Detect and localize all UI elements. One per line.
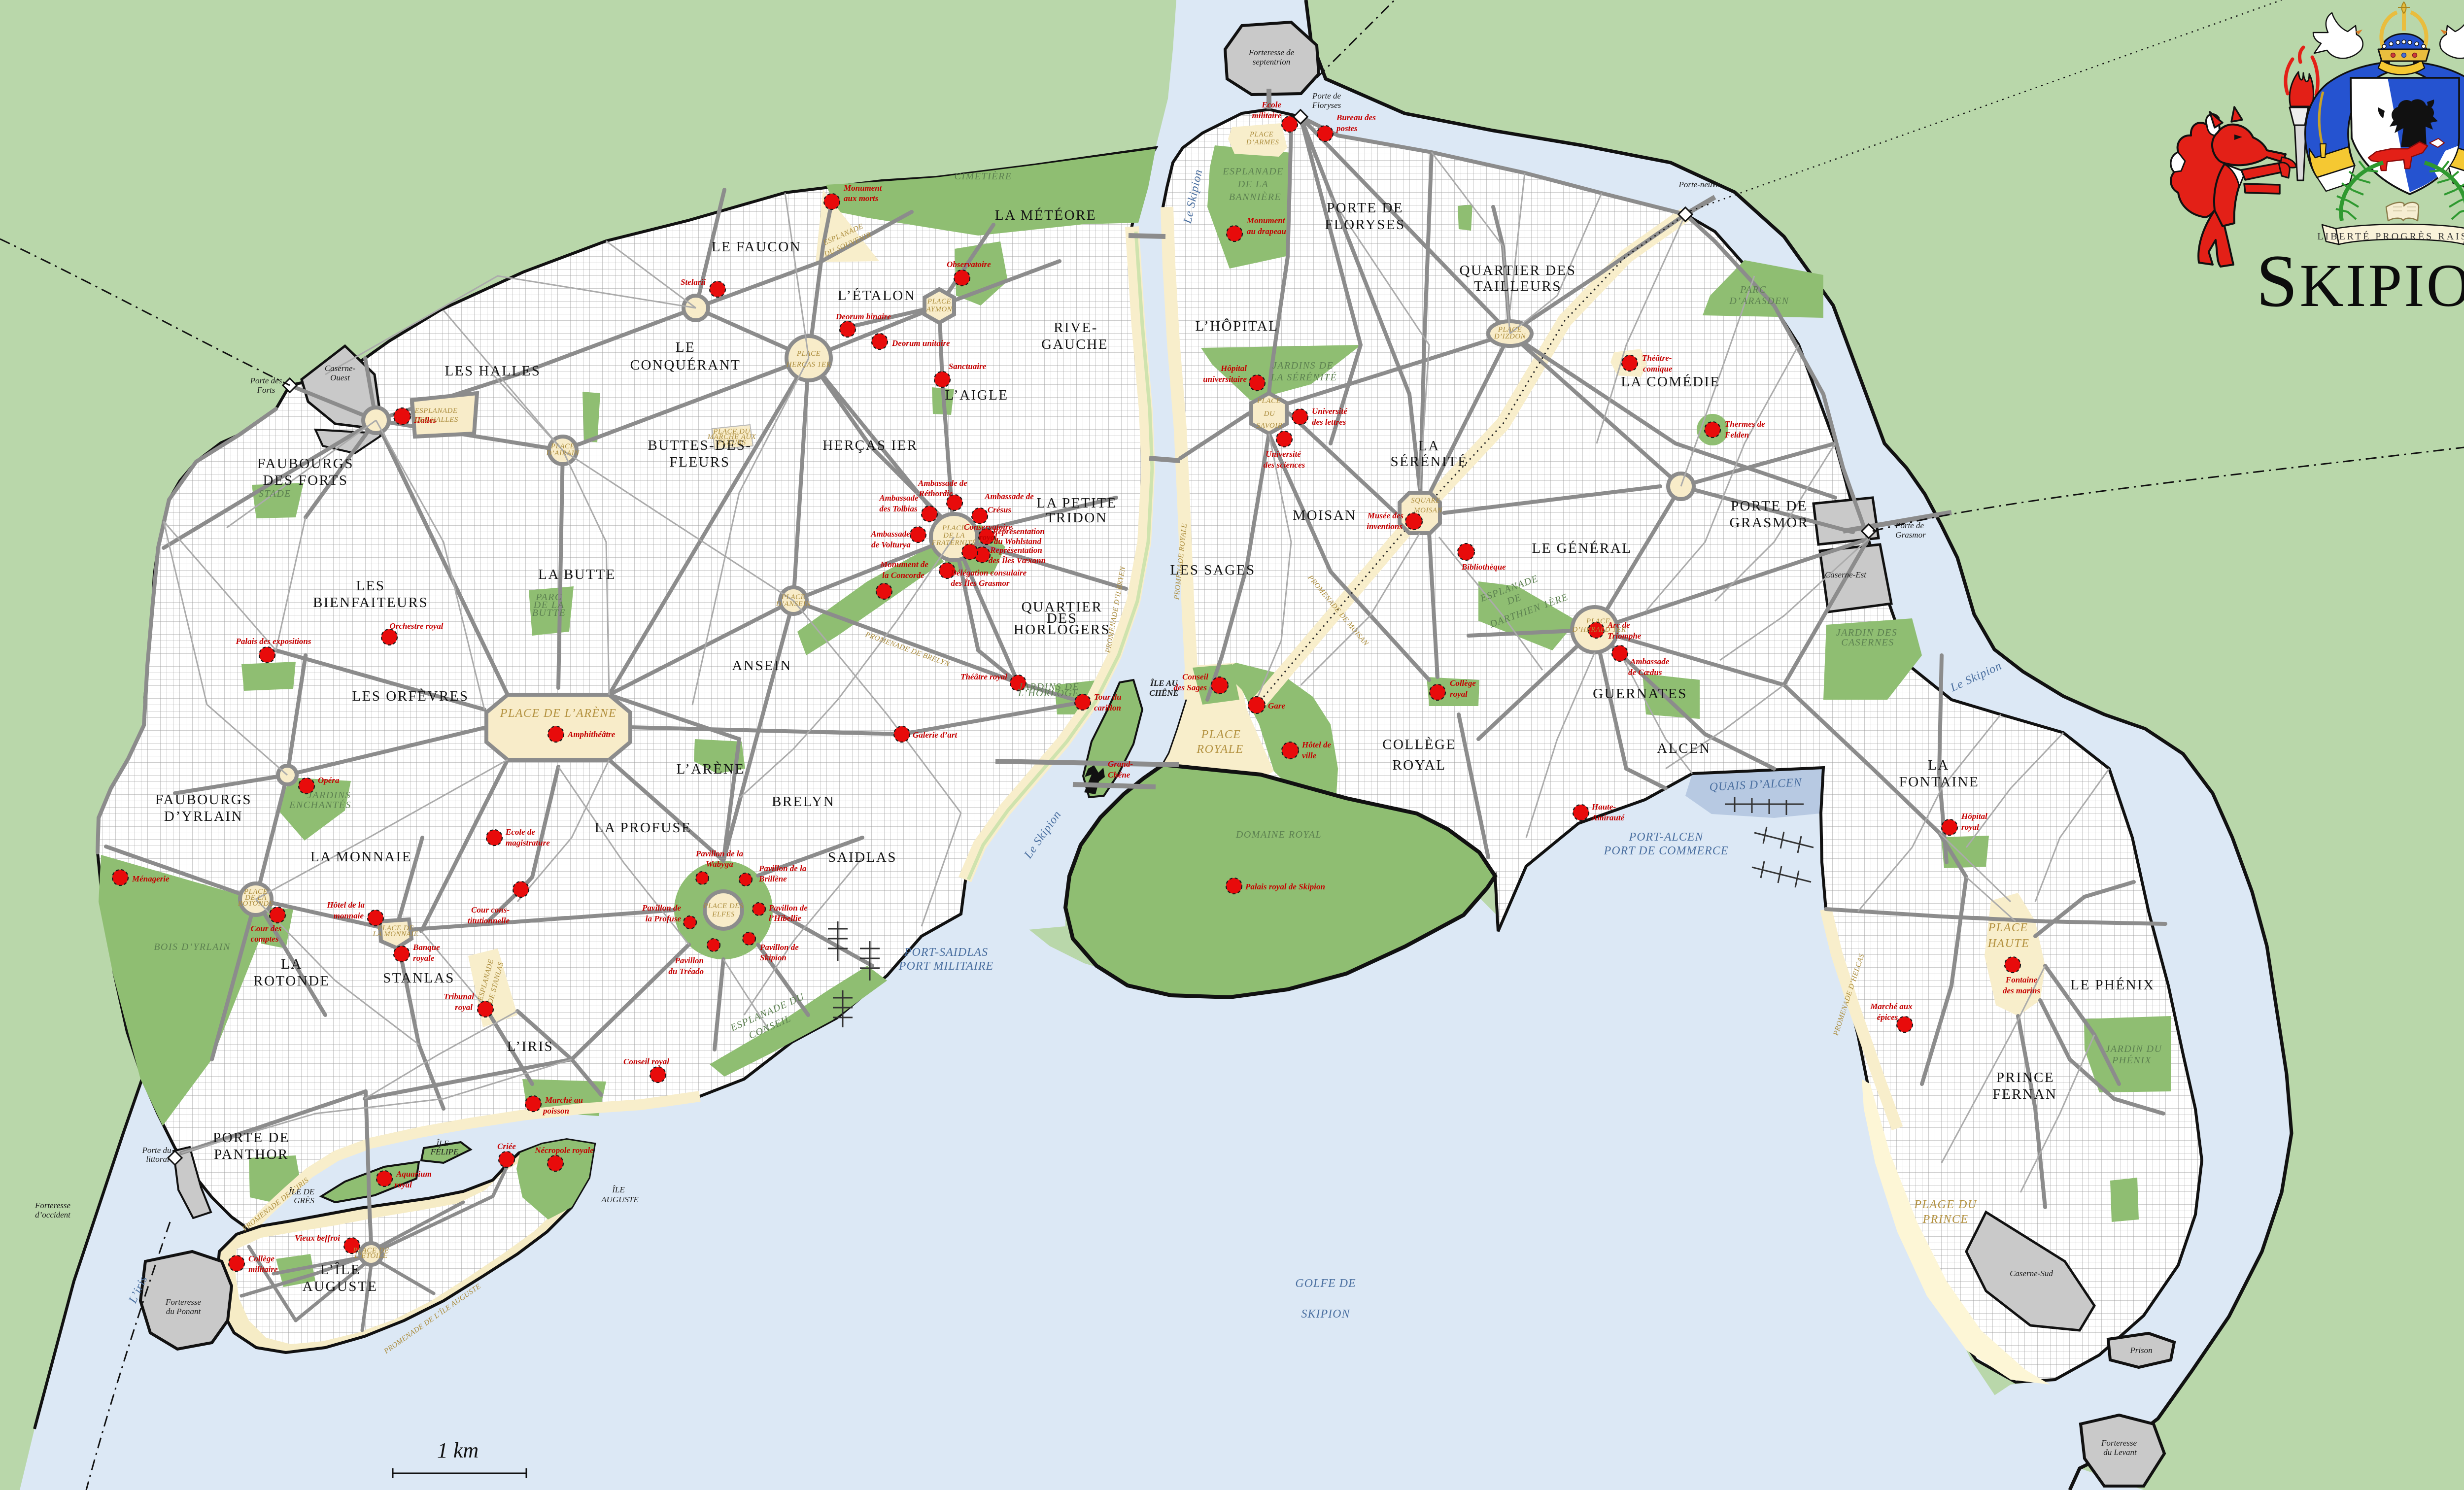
svg-text:PRINCE: PRINCE [1996, 1070, 2054, 1085]
svg-text:ROTONDE: ROTONDE [238, 900, 274, 908]
svg-text:la Concorde: la Concorde [882, 571, 924, 580]
svg-text:D’HERALD 1ER: D’HERALD 1ER [1572, 626, 1626, 634]
svg-text:Grand-: Grand- [1108, 759, 1133, 769]
svg-text:L’ÎLE: L’ÎLE [320, 1261, 361, 1278]
svg-text:QUARTIER DES: QUARTIER DES [1460, 263, 1576, 278]
svg-text:Caserne-Est: Caserne-Est [1825, 570, 1867, 579]
svg-text:1 km: 1 km [437, 1438, 479, 1462]
svg-text:PORT DE COMMERCE: PORT DE COMMERCE [1604, 845, 1729, 857]
svg-text:PLACE: PLACE [927, 298, 951, 305]
svg-text:Hôpital: Hôpital [1220, 364, 1247, 373]
svg-text:LES ORFÈVRES: LES ORFÈVRES [352, 688, 469, 704]
svg-text:COLLÈGE: COLLÈGE [1382, 736, 1456, 752]
svg-text:royal: royal [1450, 689, 1468, 699]
svg-text:STANLAS: STANLAS [383, 970, 455, 986]
svg-text:Pavillon de la: Pavillon de la [695, 849, 744, 858]
svg-text:royale: royale [413, 953, 435, 963]
svg-text:Monument: Monument [1246, 216, 1286, 225]
svg-text:ROYALE: ROYALE [1196, 743, 1243, 756]
svg-text:Conseil: Conseil [1182, 672, 1208, 681]
svg-text:L’ÉTOILE: L’ÉTOILE [354, 1252, 387, 1260]
svg-text:PORT-SAIDLAS: PORT-SAIDLAS [904, 946, 988, 959]
svg-text:ANSEIN: ANSEIN [732, 658, 791, 674]
svg-text:Floryses: Floryses [1312, 101, 1341, 110]
svg-text:des Îles Grasmor: des Îles Grasmor [951, 578, 1009, 588]
svg-text:BIENFAITEURS: BIENFAITEURS [313, 595, 428, 610]
svg-text:PANTHOR: PANTHOR [214, 1147, 289, 1162]
svg-text:ESPLANADE: ESPLANADE [1222, 166, 1284, 177]
svg-text:LES: LES [356, 578, 385, 594]
svg-text:Cour des: Cour des [251, 924, 282, 933]
svg-text:LA: LA [1928, 757, 1950, 773]
svg-text:Pavillon de: Pavillon de [759, 943, 799, 952]
svg-text:MOISAN: MOISAN [1293, 508, 1356, 523]
svg-text:Monument: Monument [843, 183, 883, 193]
svg-text:JARDIN DES: JARDIN DES [1836, 627, 1897, 638]
svg-text:Pavillon: Pavillon [674, 956, 704, 965]
svg-text:PRINCE: PRINCE [1922, 1213, 1969, 1226]
svg-text:Représentation: Représentation [990, 545, 1042, 555]
svg-text:du Ponant: du Ponant [166, 1307, 202, 1316]
svg-text:TRIDON: TRIDON [1046, 510, 1108, 526]
svg-text:Felden: Felden [1724, 430, 1749, 440]
svg-text:des marins: des marins [2003, 986, 2040, 995]
svg-text:HAUTE: HAUTE [1987, 937, 2030, 950]
svg-text:des sciences: des sciences [1264, 460, 1305, 470]
svg-text:ROTONDE: ROTONDE [253, 973, 330, 989]
svg-text:Ambassade de: Ambassade de [918, 478, 967, 488]
svg-text:Thermes de: Thermes de [1725, 419, 1765, 429]
svg-text:PLAGE DU: PLAGE DU [1914, 1198, 1977, 1211]
svg-text:SQUARE: SQUARE [1411, 497, 1440, 505]
svg-text:postes: postes [1335, 124, 1358, 133]
svg-text:AUGUSTE: AUGUSTE [303, 1279, 378, 1294]
svg-text:Deorum unitaire: Deorum unitaire [891, 339, 950, 348]
svg-text:Collège: Collège [1450, 678, 1476, 688]
svg-text:CIMETIÈRE: CIMETIÈRE [955, 170, 1012, 182]
svg-text:Délégation consulaire: Délégation consulaire [950, 568, 1027, 577]
svg-text:Galerie d’art: Galerie d’art [913, 730, 958, 740]
svg-text:Ecole: Ecole [1261, 100, 1281, 109]
svg-text:D’YRLAIN: D’YRLAIN [164, 809, 243, 824]
svg-text:D’ARMES: D’ARMES [1246, 138, 1279, 146]
svg-text:ÎLE AU: ÎLE AU [1150, 678, 1178, 688]
svg-text:Bureau des: Bureau des [1336, 113, 1376, 122]
svg-text:Fontaine: Fontaine [2005, 975, 2038, 984]
svg-text:royal: royal [394, 1180, 412, 1189]
svg-text:FAUBOURGS: FAUBOURGS [155, 792, 252, 808]
svg-text:JARDINS DE: JARDINS DE [1272, 360, 1334, 371]
svg-text:Ambassade: Ambassade [1630, 657, 1670, 666]
svg-text:GAUCHE: GAUCHE [1041, 337, 1108, 352]
svg-text:Palais royal de Skipion: Palais royal de Skipion [1245, 882, 1325, 891]
svg-text:Forteresse: Forteresse [2101, 1438, 2137, 1448]
svg-text:GUERNATES: GUERNATES [1593, 686, 1687, 702]
svg-text:LA: LA [1418, 438, 1440, 454]
svg-text:PLACE: PLACE [942, 524, 966, 532]
svg-text:Wabyga: Wabyga [706, 859, 733, 869]
svg-text:DOMAINE ROYAL: DOMAINE ROYAL [1235, 829, 1322, 840]
svg-text:Marché au: Marché au [545, 1095, 583, 1105]
svg-text:Forteresse: Forteresse [165, 1297, 202, 1307]
svg-text:GOLFE DE: GOLFE DE [1295, 1277, 1356, 1290]
svg-text:aux morts: aux morts [844, 194, 879, 203]
svg-text:magistrature: magistrature [506, 838, 550, 847]
svg-text:CONQUÉRANT: CONQUÉRANT [630, 357, 741, 373]
svg-text:d’occident: d’occident [35, 1210, 71, 1219]
svg-text:LA BUTTE: LA BUTTE [538, 567, 616, 582]
svg-text:l’Hibellie: l’Hibellie [769, 914, 802, 923]
svg-text:PORTE DE: PORTE DE [1327, 200, 1403, 216]
svg-text:L’AIGLE: L’AIGLE [945, 387, 1008, 403]
svg-text:Criée: Criée [497, 1142, 516, 1151]
svg-text:BOIS D’YRLAIN: BOIS D’YRLAIN [154, 942, 231, 952]
svg-text:comptes: comptes [251, 934, 279, 944]
svg-text:L’HORLOGE: L’HORLOGE [1018, 688, 1079, 699]
svg-text:LA PROFUSE: LA PROFUSE [595, 820, 692, 836]
svg-text:Sanctuaire: Sanctuaire [949, 362, 987, 371]
svg-text:ALCEN: ALCEN [1657, 741, 1711, 756]
svg-text:littoral: littoral [146, 1154, 170, 1164]
svg-text:LA MÉTÉORE: LA MÉTÉORE [995, 207, 1096, 223]
svg-text:Marché aux: Marché aux [1870, 1002, 1913, 1011]
svg-text:LE: LE [676, 339, 695, 355]
svg-text:STADE: STADE [259, 488, 291, 499]
svg-text:Observatoire: Observatoire [947, 260, 991, 269]
svg-text:PORT MILITAIRE: PORT MILITAIRE [898, 960, 993, 973]
svg-text:Monument de: Monument de [880, 560, 928, 569]
svg-text:AUGUSTE: AUGUSTE [601, 1195, 639, 1204]
svg-text:Hôtel de: Hôtel de [1301, 740, 1331, 749]
svg-text:LES HALLES: LES HALLES [445, 363, 541, 379]
svg-text:Pavillon de: Pavillon de [768, 903, 808, 913]
svg-text:Banque: Banque [412, 943, 440, 952]
svg-text:Orchestre royal: Orchestre royal [389, 621, 443, 631]
svg-text:FERNAN: FERNAN [1992, 1086, 2057, 1102]
svg-text:FLEURS: FLEURS [717, 439, 746, 446]
svg-text:AYMON: AYMON [926, 305, 953, 313]
svg-text:D’AIRAIN: D’AIRAIN [546, 449, 580, 457]
svg-text:Théâtre-: Théâtre- [1642, 353, 1672, 363]
svg-text:DU: DU [1264, 410, 1275, 418]
svg-text:Tour du: Tour du [1094, 692, 1122, 702]
svg-text:D’ANSEIN: D’ANSEIN [776, 600, 811, 608]
svg-text:ROYAL: ROYAL [1392, 757, 1446, 773]
svg-text:FÉLIPE: FÉLIPE [430, 1147, 459, 1156]
svg-text:SKIPION: SKIPION [1301, 1308, 1351, 1321]
svg-text:ÎLE DE: ÎLE DE [288, 1187, 315, 1196]
svg-text:Porte des: Porte des [250, 376, 282, 385]
svg-text:L’ÉTALON: L’ÉTALON [838, 287, 916, 304]
svg-text:FLORYSES: FLORYSES [1325, 217, 1405, 233]
svg-text:RIVE-: RIVE- [1054, 320, 1098, 336]
svg-text:LA MONNAIE: LA MONNAIE [310, 849, 412, 865]
svg-text:carillon: carillon [1094, 703, 1121, 712]
svg-text:DES FORTS: DES FORTS [263, 473, 348, 488]
svg-text:PORTE DE: PORTE DE [1731, 498, 1808, 514]
svg-text:LE FAUCON: LE FAUCON [712, 239, 801, 255]
svg-text:Ménagerie: Ménagerie [132, 874, 170, 883]
svg-text:Aquarium: Aquarium [396, 1169, 432, 1179]
svg-text:du Levant: du Levant [2103, 1448, 2137, 1457]
svg-text:FAUBOURGS: FAUBOURGS [257, 456, 354, 472]
svg-text:Ambassade: Ambassade [870, 529, 910, 539]
svg-text:CASERNES: CASERNES [1841, 637, 1894, 648]
svg-text:Crésus: Crésus [988, 505, 1012, 514]
svg-text:LE GÉNÉRAL: LE GÉNÉRAL [1532, 540, 1632, 556]
svg-text:ESPLANADE: ESPLANADE [414, 407, 458, 415]
svg-text:L’IRIS: L’IRIS [507, 1039, 554, 1054]
svg-text:Université: Université [1266, 449, 1301, 459]
svg-text:LA PETITE: LA PETITE [1036, 495, 1117, 511]
svg-text:Pavillon de la: Pavillon de la [758, 864, 807, 873]
svg-text:Forteresse de: Forteresse de [1248, 48, 1295, 57]
svg-text:Ambassade: Ambassade [879, 493, 919, 503]
svg-text:de Cædus: de Cædus [1628, 668, 1662, 677]
svg-text:royal: royal [1961, 822, 1979, 832]
svg-text:HERÇAS IER: HERÇAS IER [822, 438, 918, 453]
svg-text:inventions: inventions [1367, 522, 1403, 531]
svg-text:Caserne-Sud: Caserne-Sud [2010, 1269, 2053, 1278]
svg-text:PORT-ALCEN: PORT-ALCEN [1629, 831, 1704, 844]
svg-text:BRELYN: BRELYN [772, 794, 835, 810]
svg-text:Palais des expositions: Palais des expositions [235, 637, 311, 646]
svg-text:SKIPION: SKIPION [2256, 239, 2464, 322]
svg-text:Porte-neuve: Porte-neuve [1678, 180, 1720, 189]
svg-text:D’ARASDEN: D’ARASDEN [1729, 296, 1789, 306]
svg-text:Porte de: Porte de [1312, 91, 1341, 101]
svg-text:Université: Université [1312, 406, 1348, 416]
svg-text:militaire: militaire [1252, 111, 1282, 120]
svg-text:monnaie: monnaie [334, 911, 364, 920]
svg-text:PLACE: PLACE [1988, 921, 2028, 934]
svg-text:Stelarii: Stelarii [681, 277, 706, 287]
svg-text:Chêne: Chêne [1108, 770, 1130, 779]
svg-text:JARDINS: JARDINS [308, 790, 351, 801]
svg-text:Amirauté: Amirauté [1591, 813, 1625, 822]
svg-text:Ambassade de: Ambassade de [984, 492, 1034, 501]
svg-text:FONTAINE: FONTAINE [1899, 774, 1980, 790]
svg-text:L’HÔPITAL: L’HÔPITAL [1196, 318, 1279, 334]
svg-text:Grasmor: Grasmor [1895, 530, 1926, 540]
svg-text:PORTE DE: PORTE DE [213, 1130, 290, 1146]
svg-text:LE PHÉNIX: LE PHÉNIX [2070, 977, 2155, 993]
svg-text:Réthordie: Réthordie [919, 489, 953, 498]
svg-text:Forts: Forts [257, 385, 275, 395]
svg-text:des lettres: des lettres [1312, 417, 1346, 427]
svg-text:DE LA: DE LA [943, 532, 965, 540]
svg-text:CHÊNE: CHÊNE [1149, 688, 1179, 698]
svg-text:LA SÉRÉNITÉ: LA SÉRÉNITÉ [1270, 372, 1337, 383]
svg-text:Opéra: Opéra [318, 776, 340, 785]
svg-text:PHÉNIX: PHÉNIX [2112, 1054, 2152, 1066]
svg-text:Haute-: Haute- [1591, 802, 1616, 812]
svg-text:Musée des: Musée des [1367, 511, 1404, 520]
svg-text:Tribunal: Tribunal [444, 992, 474, 1001]
svg-text:PLACE: PLACE [1249, 131, 1273, 138]
svg-text:la Profuse: la Profuse [646, 914, 682, 923]
svg-text:GRASMOR: GRASMOR [1730, 515, 1809, 531]
svg-text:HORLOGERS: HORLOGERS [1014, 622, 1111, 638]
svg-text:FRATERNITÉ: FRATERNITÉ [931, 539, 976, 547]
svg-text:des Îles Væxann: des Îles Væxann [989, 556, 1046, 565]
svg-text:HERÇAS 1ER: HERÇAS 1ER [786, 361, 831, 369]
svg-text:Amphithéâtre: Amphithéâtre [567, 730, 616, 739]
svg-text:du Wohlstand: du Wohlstand [994, 537, 1042, 546]
svg-text:DE LA: DE LA [1237, 179, 1269, 190]
svg-text:LIBERTÉ PROGRÈS RAISON: LIBERTÉ PROGRÈS RAISON [2317, 231, 2464, 242]
svg-text:ENCHANTÉS: ENCHANTÉS [289, 799, 351, 811]
svg-text:SAIDLAS: SAIDLAS [828, 849, 897, 865]
svg-text:SÉRÉNITÉ: SÉRÉNITÉ [1391, 453, 1468, 470]
svg-text:GRÈS: GRÈS [294, 1196, 314, 1205]
svg-text:royal: royal [455, 1003, 473, 1012]
svg-text:royal: royal [979, 533, 997, 542]
svg-text:PLACE: PLACE [1586, 617, 1610, 625]
svg-text:Ecole de: Ecole de [505, 827, 535, 837]
svg-text:Conseil royal: Conseil royal [623, 1057, 669, 1066]
svg-text:Hôtel de la: Hôtel de la [327, 900, 365, 910]
svg-text:BANNIÈRE: BANNIÈRE [1229, 191, 1281, 203]
svg-text:FLEURS: FLEURS [670, 454, 730, 470]
svg-text:Prison: Prison [2129, 1346, 2152, 1355]
svg-text:PARC: PARC [1740, 284, 1766, 295]
svg-text:PLACE: PLACE [1201, 728, 1241, 741]
svg-text:D’IZDON: D’IZDON [1494, 333, 1526, 340]
svg-text:Ouest: Ouest [330, 373, 350, 382]
svg-text:Caserne-: Caserne- [325, 364, 356, 373]
svg-text:épices: épices [1877, 1013, 1898, 1022]
svg-text:L’ARÈNE: L’ARÈNE [677, 761, 745, 777]
svg-text:titutionnelle: titutionnelle [468, 916, 510, 925]
svg-text:TAILLEURS: TAILLEURS [1474, 278, 1562, 294]
svg-text:Cour cons-: Cour cons- [471, 905, 510, 914]
svg-text:de Volturya: de Volturya [871, 540, 911, 549]
svg-text:JARDIN DU: JARDIN DU [2105, 1044, 2162, 1054]
svg-text:Porte du: Porte du [141, 1146, 171, 1155]
svg-text:Bibliothèque: Bibliothèque [1461, 562, 1506, 572]
svg-text:ÎLE: ÎLE [612, 1185, 625, 1194]
svg-text:ELFES: ELFES [712, 911, 735, 918]
svg-text:Forteresse: Forteresse [34, 1201, 71, 1210]
svg-text:Gare: Gare [1268, 701, 1285, 711]
svg-text:PLACE: PLACE [796, 350, 821, 358]
svg-text:comique: comique [1643, 364, 1673, 373]
svg-text:Hôpital: Hôpital [1961, 812, 1987, 821]
svg-text:Pavillon de: Pavillon de [642, 903, 681, 913]
svg-text:PLACE DES: PLACE DES [703, 902, 744, 910]
svg-text:LA: LA [281, 956, 303, 972]
svg-text:universitaire: universitaire [1203, 374, 1247, 384]
svg-text:Collège: Collège [248, 1254, 274, 1263]
svg-text:militaire: militaire [248, 1265, 278, 1274]
svg-text:DES HALLES: DES HALLES [413, 416, 458, 424]
svg-text:PLACE: PLACE [1257, 397, 1281, 405]
svg-text:Théâtre royal: Théâtre royal [960, 672, 1007, 681]
svg-text:des Tolbias: des Tolbias [879, 504, 918, 513]
svg-text:poisson: poisson [542, 1106, 569, 1116]
svg-text:Skipion: Skipion [760, 953, 787, 962]
svg-text:septentrion: septentrion [1253, 57, 1291, 67]
svg-text:BUTTE: BUTTE [532, 608, 566, 618]
svg-text:ville: ville [1302, 751, 1317, 760]
svg-text:PLACE DE L’ARÈNE: PLACE DE L’ARÈNE [500, 707, 616, 720]
svg-text:SAVOIR: SAVOIR [1257, 422, 1283, 430]
svg-text:Brillène: Brillène [758, 874, 787, 883]
svg-text:au drapeau: au drapeau [1247, 227, 1286, 236]
svg-text:LA MONNAIE: LA MONNAIE [373, 930, 419, 938]
svg-text:du Tréado: du Tréado [668, 967, 704, 976]
svg-text:Nécropole royale: Nécropole royale [534, 1146, 594, 1155]
svg-text:Vieux beffroi: Vieux beffroi [295, 1233, 340, 1243]
svg-text:Deorum binaire: Deorum binaire [835, 312, 891, 321]
svg-text:Conservatoire: Conservatoire [964, 522, 1013, 532]
svg-text:MOISAN: MOISAN [1413, 507, 1442, 514]
svg-text:LA COMÉDIE: LA COMÉDIE [1621, 373, 1720, 390]
